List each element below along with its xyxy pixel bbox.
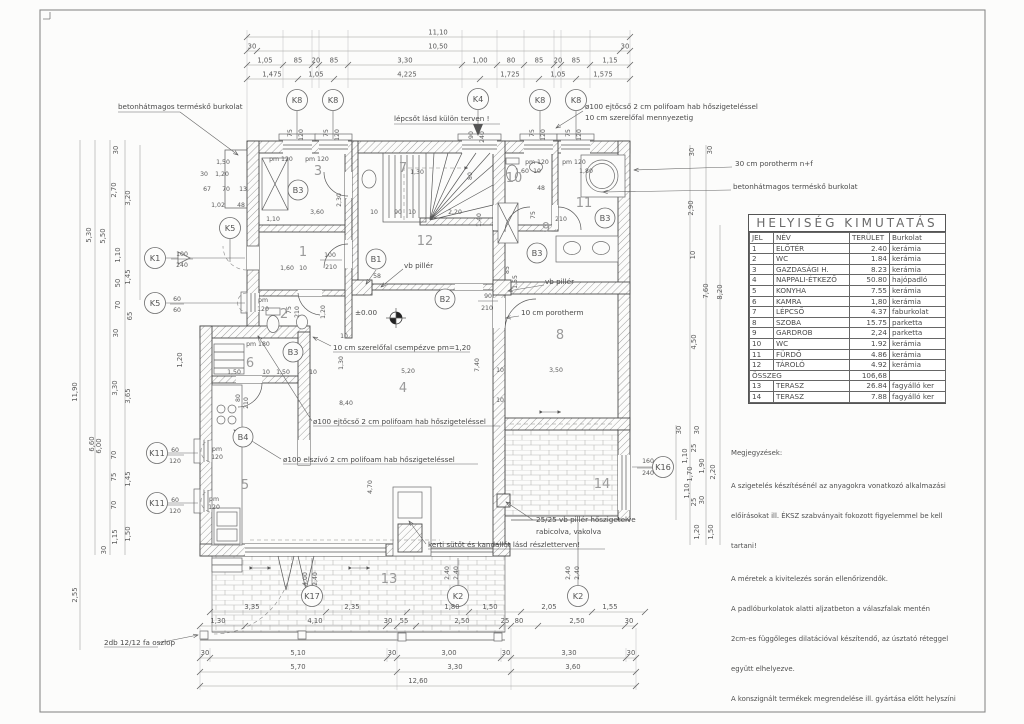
dim-label: 70	[222, 186, 230, 193]
dim-label: 10	[496, 367, 504, 374]
cell: NAPPALI-ÉTKEZŐ	[774, 275, 850, 286]
dim-label: 160	[642, 458, 654, 465]
dim-label: 30	[706, 146, 714, 155]
dim-label: 90	[468, 131, 475, 139]
table-row: 7LÉPCSŐ4.37faburkolat	[750, 307, 946, 318]
dim-label: 3,50	[549, 367, 563, 374]
annotation-porotherm10: 10 cm porotherm	[521, 308, 583, 317]
cell: parketta	[890, 317, 946, 328]
dim-label: 85	[504, 266, 511, 274]
cell: kerámia	[890, 360, 946, 371]
dim-label: 8,40	[339, 400, 353, 407]
dim-label: 1,90	[698, 458, 706, 473]
dim-label: 80	[235, 394, 242, 402]
cell: 9	[750, 328, 774, 339]
dim-label: 85	[330, 57, 339, 65]
dim-label: 13	[239, 186, 247, 193]
dim-label: 2,05	[541, 603, 556, 611]
cell-total-label: ÖSSZEG	[750, 370, 850, 381]
cell: 7	[750, 307, 774, 318]
cell: WC	[774, 254, 850, 265]
table-row: 5KONYHA7.55kerámia	[750, 285, 946, 296]
dim-label: pm 120	[525, 159, 549, 166]
dim-label: 4,00	[302, 572, 309, 586]
marker-k2: K2	[573, 591, 584, 601]
cell: fagyálló ker	[890, 381, 946, 392]
dim-label: 90	[394, 209, 402, 216]
dim-label: 10	[533, 168, 541, 175]
dim-label: 30	[200, 171, 208, 178]
table-row: 9GARDROB2,24parketta	[750, 328, 946, 339]
dim-label: 1,50	[276, 369, 290, 376]
dim-label: 4,50	[690, 334, 698, 349]
note-line: tartani!	[731, 541, 976, 551]
dim-label: 1,50	[216, 159, 230, 166]
cell: 2,24	[850, 328, 890, 339]
dim-label: 10	[262, 369, 270, 376]
level-label: ±0.00	[355, 308, 377, 317]
dim-label: 210	[555, 216, 567, 223]
dim-label: 48	[237, 202, 245, 209]
dim-label: 60	[173, 307, 181, 314]
dim-label: 85	[535, 57, 544, 65]
cell: SZOBA	[774, 317, 850, 328]
dim-label: 1,60	[280, 265, 294, 272]
dim-label: 3,30	[447, 663, 462, 671]
dim-label: 100	[176, 251, 188, 258]
annotation-vb-pillar: vb pillér	[545, 277, 574, 286]
dim-label: 3,30	[111, 380, 119, 395]
dim-label: 8,20	[716, 284, 724, 299]
dim-label: 1,30	[210, 617, 225, 625]
cell: LÉPCSŐ	[774, 307, 850, 318]
dim-label: 30	[675, 426, 683, 435]
dim-label: 48	[537, 185, 545, 192]
col-terulet: TERÜLET	[850, 233, 890, 244]
dim-label: 210	[294, 306, 301, 318]
dim-label: 1,45	[124, 269, 132, 284]
cell: TÁROLÓ	[774, 360, 850, 371]
dim-label: 30	[627, 649, 636, 657]
dim-label: 6,00	[95, 438, 103, 453]
dim-label: pm	[258, 297, 268, 304]
room-schedule: HELYISÉG KIMUTATÁS JEL NÉV TERÜLET Burko…	[748, 214, 946, 404]
cell: 2.40	[850, 243, 890, 254]
dim-label: 60	[171, 447, 179, 454]
dim-label: 1,45	[124, 471, 132, 486]
dim-label: 1,475	[262, 71, 281, 79]
dim-label: 4,225	[397, 71, 416, 79]
dim-label: 7,60	[702, 283, 710, 298]
dim-label: 1,55	[602, 603, 617, 611]
cell: 7.88	[850, 391, 890, 402]
cell: hajópadló	[890, 275, 946, 286]
dim-label: 50	[114, 279, 122, 288]
dim-label: 60	[171, 497, 179, 504]
cell: KONYHA	[774, 285, 850, 296]
annotation-extract: ø100 elszívó 2 cm polifoam hab hőszigete…	[283, 455, 455, 464]
cell: kerámia	[890, 338, 946, 349]
cell: parketta	[890, 328, 946, 339]
dim-label: 2,40	[574, 566, 581, 580]
dim-label: 30	[201, 649, 210, 657]
dim-label: 11,90	[71, 382, 79, 401]
room-number: 6	[246, 356, 254, 371]
dim-label: 3,30	[397, 57, 412, 65]
dim-label: 1,30	[410, 169, 424, 176]
cell: fagyálló ker	[890, 391, 946, 402]
dim-label: 3,60	[310, 209, 324, 216]
dim-label: 1,20	[320, 305, 327, 319]
dim-label: pm 180	[246, 341, 270, 348]
marker-b1: B1	[371, 254, 382, 264]
dim-label: 10	[309, 369, 317, 376]
table-row: 3GAZDASÁGI H.8.23kerámia	[750, 264, 946, 275]
dim-label: 80	[515, 617, 524, 625]
dim-label: 10	[496, 397, 504, 404]
cell: 4.37	[850, 307, 890, 318]
dim-label: 10	[340, 333, 348, 340]
dim-label: 3,65	[124, 388, 132, 403]
cell	[890, 370, 946, 381]
room-number: 14	[594, 477, 611, 492]
dim-label: 2,50	[454, 617, 469, 625]
dim-label: pm 120	[562, 159, 586, 166]
dim-label: 2,90	[687, 200, 695, 215]
cell: FÜRDŐ	[774, 349, 850, 360]
dim-label: 4,10	[307, 617, 322, 625]
marker-b3: B3	[288, 347, 299, 357]
dim-label: 30	[384, 617, 393, 625]
dim-label: 30	[698, 496, 706, 505]
marker-k2: K2	[453, 591, 464, 601]
annotation-studwall-tiled: 10 cm szerelőfal csempézve pm=1,20	[333, 343, 471, 352]
dim-label: 5,30	[85, 227, 93, 242]
dim-label: 58	[373, 273, 381, 280]
cell: faburkolat	[890, 307, 946, 318]
dim-label: 120	[334, 129, 341, 141]
dim-label: 30	[621, 43, 630, 51]
cell: 2	[750, 254, 774, 265]
dim-label: 2,35	[344, 603, 359, 611]
table-row: 11FÜRDŐ4.86kerámia	[750, 349, 946, 360]
notes-block: Megjegyzések: A szigetelés készítésénél …	[731, 428, 976, 724]
dim-label: 70	[114, 301, 122, 310]
room-number: 1	[299, 245, 307, 260]
cell: 3	[750, 264, 774, 275]
table-row: 4NAPPALI-ÉTKEZŐ50.80hajópadló	[750, 275, 946, 286]
marker-b3: B3	[293, 185, 304, 195]
dim-label: 75	[287, 129, 294, 137]
schedule-title: HELYISÉG KIMUTATÁS	[749, 215, 945, 232]
dim-label: 1,10	[683, 483, 691, 498]
note-line: előírásokat ill. ÉKSZ szabványait fokozo…	[731, 511, 976, 521]
dim-label: 30	[688, 148, 696, 157]
dim-label: 3,60	[565, 663, 580, 671]
dim-label: 30	[112, 146, 120, 155]
cell: ELŐTÉR	[774, 243, 850, 254]
annotation-garden-oven: kerti sütőt és kandallót lásd részletter…	[428, 540, 580, 549]
dim-label: 4,70	[367, 480, 374, 494]
table-row: 14TERASZ7.88fagyálló ker	[750, 391, 946, 402]
left-dimensions: 30 2,70 3,20 5,30 5,50 1,10 1,45 50 70 6…	[71, 146, 184, 603]
note-line: A konszignált termékek megrendelése ill.…	[731, 694, 976, 704]
dim-label: 120	[169, 508, 181, 515]
cell: TERASZ	[774, 391, 850, 402]
dim-label: 10	[408, 209, 416, 216]
dim-label: 3,20	[124, 190, 132, 205]
room-number: 5	[241, 478, 249, 493]
dim-label: 1,50	[124, 526, 132, 541]
room-number: 9	[542, 221, 550, 236]
dim-label: pm 120	[269, 156, 293, 163]
table-row: 13TERASZ26.84fagyálló ker	[750, 381, 946, 392]
room-number: 4	[399, 381, 407, 396]
marker-k11: K11	[149, 498, 165, 508]
marker-k5: K5	[225, 223, 236, 233]
annotation-studwall-top: 10 cm szerelőfal mennyezetig	[585, 113, 693, 122]
annotation-porotherm30: 30 cm porotherm n+f	[735, 159, 813, 168]
dim-label: 1,70	[686, 466, 694, 481]
dim-label: 1,50	[707, 524, 715, 539]
dim-label: 100	[324, 252, 336, 259]
cell: kerámia	[890, 264, 946, 275]
dim-label: 2,40	[444, 566, 451, 580]
dim-label: 120	[169, 458, 181, 465]
cell: 4	[750, 275, 774, 286]
dim-label: 240	[479, 131, 486, 143]
dim-label: 3,00	[441, 649, 456, 657]
cell: 13	[750, 381, 774, 392]
cell: kerámia	[890, 296, 946, 307]
level-symbol	[386, 308, 406, 328]
dim-label: 1,02	[211, 202, 225, 209]
dim-label: 3,35	[244, 603, 259, 611]
annotation-cladding-right: betonhátmagos terméskő burkolat	[733, 182, 858, 191]
drawing-sheet: K8 K8 K4 K8 K8 K1 K5 K5 K11 K11 K17 K2 K…	[0, 0, 1024, 724]
dim-label: 120	[208, 504, 220, 511]
dim-label: 12,60	[408, 677, 427, 685]
cell: GAZDASÁGI H.	[774, 264, 850, 275]
cell: kerámia	[890, 243, 946, 254]
cell: 1.84	[850, 254, 890, 265]
dim-label: 2,40	[312, 572, 319, 586]
marker-k8: K8	[535, 95, 546, 105]
cell: 6	[750, 296, 774, 307]
note-line: A padlóburkolatok alatti aljzatbeton a v…	[731, 604, 976, 614]
dim-label: 75	[110, 473, 118, 482]
cell: 4.92	[850, 360, 890, 371]
note-line: együtt elhelyezve.	[731, 664, 976, 674]
marker-b3: B3	[532, 248, 543, 258]
cell: 8	[750, 317, 774, 328]
dim-label: pm	[209, 496, 219, 503]
dim-label: 2,55	[71, 587, 79, 602]
cell: 15.75	[850, 317, 890, 328]
annotation-stairs-note: lépcsőt lásd külön terven !	[394, 114, 490, 123]
dim-label: 80	[507, 57, 516, 65]
dim-label: 10	[299, 265, 307, 272]
dim-label: 240	[176, 262, 188, 269]
col-burkolat: Burkolat	[890, 233, 946, 244]
dim-label: 210	[481, 305, 493, 312]
marker-k17: K17	[304, 591, 320, 601]
dim-label: 2,30	[336, 193, 343, 207]
dim-label: 240	[642, 470, 654, 477]
cell: TERASZ	[774, 381, 850, 392]
dim-label: 65	[126, 312, 134, 321]
dim-label: 5,10	[290, 649, 305, 657]
table-row-total: ÖSSZEG106,68	[750, 370, 946, 381]
dim-label: 120	[540, 129, 547, 141]
top-dimensions: 11,10 30 10,50 30 1,05 85 20 85 3,30 1,0…	[248, 29, 630, 79]
dim-label: 30	[112, 329, 120, 338]
dim-label: 1,575	[593, 71, 612, 79]
cell: 4.86	[850, 349, 890, 360]
note-line: A szigetelés készítésénél az anyagokra v…	[731, 481, 976, 491]
dim-label: 75	[323, 129, 330, 137]
marker-k4: K4	[473, 94, 484, 104]
dim-label: 85	[572, 57, 581, 65]
marker-k11: K11	[149, 448, 165, 458]
dim-label: 1,05	[550, 71, 565, 79]
annotation-vb-pillar: vb pillér	[404, 261, 433, 270]
dim-label: 20	[312, 57, 321, 65]
dim-label: 1,10	[266, 216, 280, 223]
dim-label: 30	[625, 617, 634, 625]
dim-label: 1,725	[500, 71, 519, 79]
room-number: 11	[576, 196, 593, 211]
dim-label: 75	[565, 129, 572, 137]
dim-label: 2,20	[709, 464, 717, 479]
room-number: 2	[280, 307, 288, 322]
dim-label: 80	[467, 172, 474, 180]
dim-label: 1,05	[257, 57, 272, 65]
dim-label: 10	[370, 209, 378, 216]
marker-k8: K8	[328, 95, 339, 105]
dim-label: pm	[212, 446, 222, 453]
marker-k8: K8	[292, 95, 303, 105]
dim-label: 60	[173, 296, 181, 303]
room-number: 10	[506, 171, 523, 186]
dim-label: 1,10	[114, 247, 122, 262]
marker-k16: K16	[655, 462, 671, 472]
note-line: 2cm-es függőleges dilatációval készítend…	[731, 634, 976, 644]
dim-label: 1,30	[338, 356, 345, 370]
cell: 50.80	[850, 275, 890, 286]
dim-label: 1,55	[512, 275, 519, 289]
marker-b2: B2	[440, 294, 451, 304]
dim-label: 7,40	[474, 358, 481, 372]
cell: 11	[750, 349, 774, 360]
dim-label: 5,50	[99, 228, 107, 243]
dim-label: 1,80	[444, 603, 459, 611]
dim-label: 2,20	[448, 209, 462, 216]
annotation-downpipe-top: ø100 ejtőcső 2 cm polifoam hab hőszigete…	[585, 102, 758, 111]
cell-total-value: 106,68	[850, 370, 890, 381]
right-dimensions: 30 30 2,90 10 7,60 8,20 4,50 30 30 25 1,…	[675, 146, 724, 540]
table-row: 2WC1.84kerámia	[750, 254, 946, 265]
cell: kerámia	[890, 285, 946, 296]
marker-k1: K1	[150, 253, 161, 263]
table-row: 10WC1.92kerámia	[750, 338, 946, 349]
table-row: 6KAMRA1,80kerámia	[750, 296, 946, 307]
dim-label: 70	[110, 451, 118, 460]
cell: 26.84	[850, 381, 890, 392]
annotation-downpipe-mid: ø100 ejtőcső 2 cm polifoam hab hőszigete…	[313, 417, 486, 426]
dim-label: 1,50	[227, 369, 241, 376]
cell: GARDROB	[774, 328, 850, 339]
dim-label: 210	[325, 264, 337, 271]
dim-label: 30	[502, 649, 511, 657]
dim-label: 1,20	[215, 171, 229, 178]
dim-label: 120	[257, 306, 269, 313]
cell: 1.92	[850, 338, 890, 349]
dim-label: 210	[243, 397, 250, 409]
cell: kerámia	[890, 254, 946, 265]
room-number: 3	[314, 164, 322, 179]
dim-label: 3,30	[561, 649, 576, 657]
dim-label: 1,80	[579, 168, 593, 175]
dim-label: 25	[690, 498, 698, 507]
dim-label: 2,40	[453, 566, 460, 580]
dim-label: 67	[203, 186, 211, 193]
cell: 1	[750, 243, 774, 254]
dim-label: 2,70	[110, 182, 118, 197]
dim-label: 85	[294, 57, 303, 65]
annotation-pillar2525-2: rabicolva, vakolva	[536, 527, 601, 536]
annotation-cladding-top: betonhátmagos terméskő burkolat	[118, 102, 243, 111]
dim-label: 55	[400, 617, 409, 625]
dim-label: 1,20	[693, 524, 701, 539]
dim-label: 120	[576, 129, 583, 141]
cell: 1,80	[850, 296, 890, 307]
cell: 10	[750, 338, 774, 349]
dim-label: 120	[298, 129, 305, 141]
notes-title: Megjegyzések:	[731, 448, 976, 458]
dim-label: 1,15	[111, 529, 119, 544]
table-row: 8SZOBA15.75parketta	[750, 317, 946, 328]
dim-label: 70	[110, 501, 118, 510]
room-number: 12	[417, 234, 434, 249]
room-number: 13	[381, 572, 398, 587]
dim-label: 11,10	[428, 29, 447, 37]
dim-label: 2,50	[569, 617, 584, 625]
cell: WC	[774, 338, 850, 349]
marker-k5: K5	[150, 298, 161, 308]
dim-label: 25	[690, 444, 698, 453]
col-nev: NÉV	[774, 233, 850, 244]
cell: 14	[750, 391, 774, 402]
dim-label: 1,10	[681, 448, 689, 463]
dim-label: 5,70	[290, 663, 305, 671]
room-number: 8	[556, 328, 564, 343]
dim-label: 25	[501, 617, 510, 625]
dim-label: 20	[554, 57, 563, 65]
cell: 8.23	[850, 264, 890, 275]
col-jel: JEL	[750, 233, 774, 244]
dim-label: 1,40	[476, 213, 483, 227]
marker-k8: K8	[571, 95, 582, 105]
annotation-pillar2525-1: 25/25 vb pillér hőszigetelve	[536, 515, 636, 524]
table-row: 1ELŐTÉR2.40kerámia	[750, 243, 946, 254]
dim-label: 75	[529, 129, 536, 137]
dim-label: 30	[693, 426, 701, 435]
dim-label: 2,40	[565, 566, 572, 580]
dim-label: 120	[211, 454, 223, 461]
dim-label: 1,15	[602, 57, 617, 65]
table-row: 12TÁROLÓ4.92kerámia	[750, 360, 946, 371]
